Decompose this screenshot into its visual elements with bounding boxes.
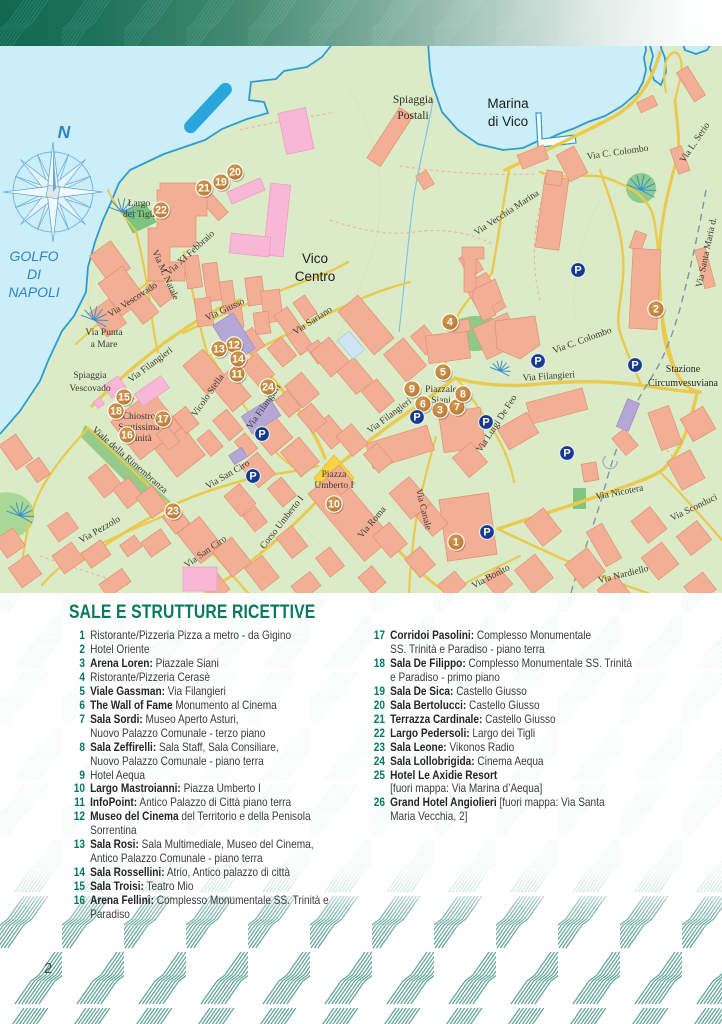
svg-text:P: P — [249, 471, 256, 483]
svg-text:19: 19 — [215, 177, 227, 189]
svg-text:22: 22 — [155, 205, 167, 217]
svg-text:17: 17 — [157, 414, 169, 426]
svg-text:Stazione: Stazione — [666, 364, 701, 375]
svg-text:18: 18 — [110, 406, 122, 418]
svg-text:7: 7 — [454, 402, 460, 414]
svg-text:P: P — [413, 412, 420, 424]
svg-text:Via Punta: Via Punta — [85, 328, 123, 338]
svg-text:P: P — [534, 356, 541, 368]
svg-text:di Vico: di Vico — [488, 114, 528, 129]
svg-text:8: 8 — [460, 389, 466, 401]
svg-text:P: P — [258, 429, 265, 441]
svg-text:6: 6 — [420, 399, 426, 411]
svg-text:dei Tigli: dei Tigli — [123, 210, 155, 220]
svg-text:4: 4 — [447, 317, 453, 329]
svg-text:P: P — [574, 265, 581, 277]
svg-text:23: 23 — [167, 506, 179, 518]
svg-text:Vico: Vico — [302, 251, 328, 266]
svg-text:Spiaggia: Spiaggia — [73, 371, 107, 381]
svg-text:5: 5 — [440, 367, 446, 379]
svg-text:P: P — [563, 448, 570, 460]
svg-text:Largo: Largo — [128, 199, 151, 209]
svg-text:P: P — [482, 417, 489, 429]
svg-text:a Mare: a Mare — [91, 340, 118, 350]
svg-text:20: 20 — [229, 167, 241, 179]
svg-text:Piazza: Piazza — [322, 470, 348, 480]
svg-text:9: 9 — [409, 384, 415, 396]
svg-text:Postali: Postali — [397, 110, 428, 122]
svg-text:Spiaggia: Spiaggia — [393, 94, 433, 106]
svg-text:N: N — [58, 122, 71, 142]
svg-text:14: 14 — [232, 354, 244, 366]
svg-text:10: 10 — [328, 499, 340, 511]
svg-text:15: 15 — [118, 392, 130, 404]
svg-text:2: 2 — [653, 304, 659, 316]
svg-text:13: 13 — [213, 344, 225, 356]
svg-text:16: 16 — [121, 430, 133, 442]
svg-text:24: 24 — [262, 382, 274, 394]
svg-text:21: 21 — [198, 183, 210, 195]
svg-text:DI: DI — [27, 266, 41, 282]
svg-text:Circumvesuviana: Circumvesuviana — [648, 378, 719, 389]
svg-text:P: P — [631, 360, 638, 372]
svg-text:3: 3 — [437, 405, 443, 417]
svg-text:12: 12 — [228, 340, 240, 352]
svg-text:NAPOLI: NAPOLI — [8, 284, 59, 300]
svg-text:Umberto I: Umberto I — [314, 481, 353, 491]
svg-text:GOLFO: GOLFO — [9, 248, 58, 264]
svg-text:Centro: Centro — [295, 269, 336, 284]
svg-text:Marina: Marina — [487, 96, 529, 111]
svg-text:11: 11 — [231, 369, 242, 381]
svg-text:Vescovado: Vescovado — [69, 384, 110, 394]
svg-text:Piazzale: Piazzale — [425, 385, 457, 395]
svg-text:1: 1 — [453, 537, 459, 549]
svg-text:Chiostro: Chiostro — [123, 412, 156, 422]
svg-text:P: P — [483, 527, 490, 539]
